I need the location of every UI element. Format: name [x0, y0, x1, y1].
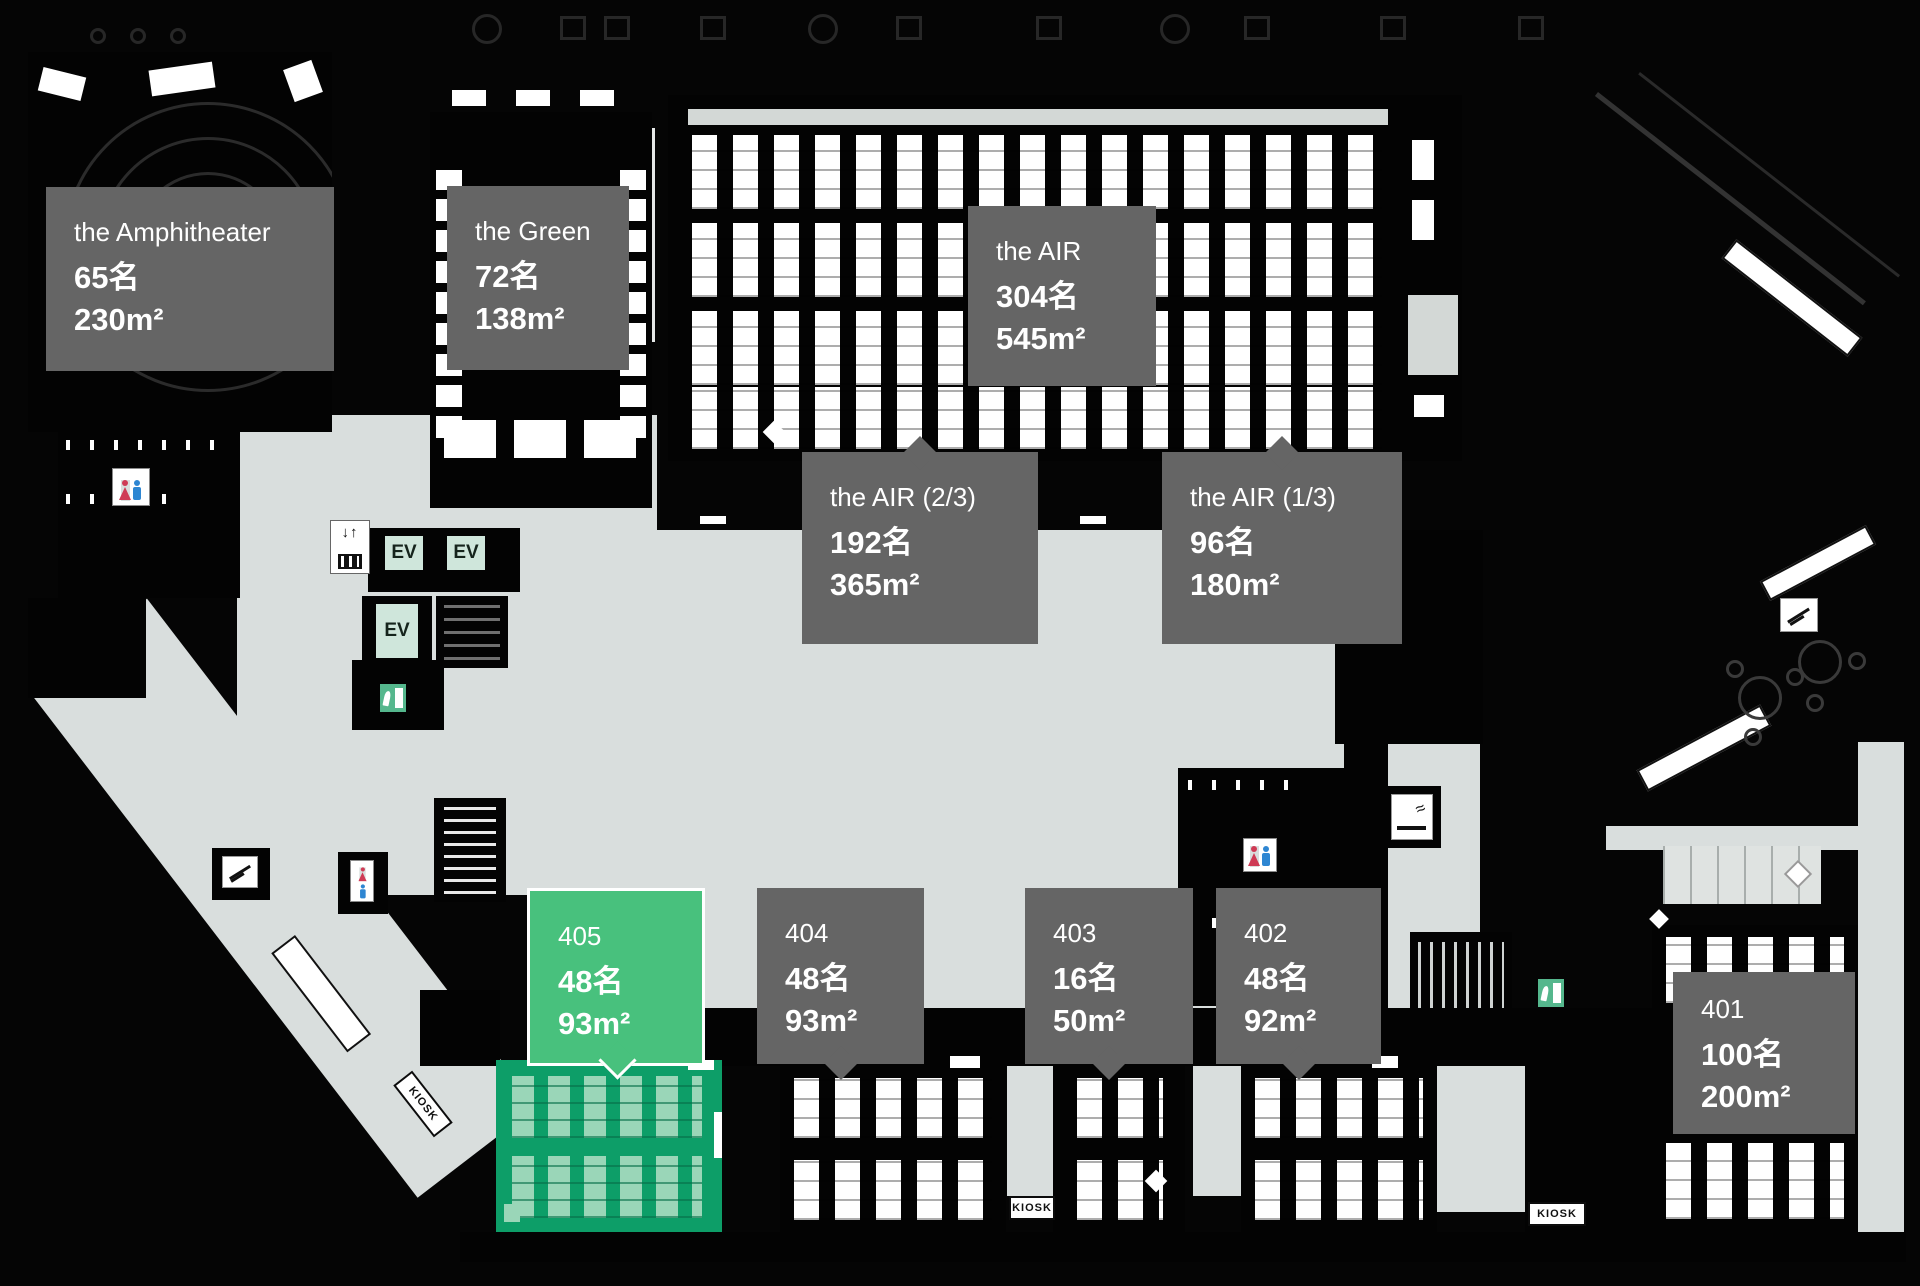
- cafe-chair: [1848, 652, 1866, 670]
- room-label-405-selected[interactable]: 405 48名 93m²: [527, 888, 705, 1066]
- female-icon: [359, 867, 365, 878]
- cafe-chair: [1806, 694, 1824, 712]
- stage-desk: [149, 62, 216, 97]
- restroom-block: [58, 430, 240, 598]
- female-icon: [1250, 846, 1259, 867]
- stage-counter: [688, 109, 1388, 125]
- room-area: 138m²: [475, 298, 629, 340]
- seat-band: [1255, 1078, 1423, 1138]
- door-gap: [1080, 516, 1106, 524]
- room-capacity: 48名: [1244, 958, 1381, 1000]
- stair-treads: [444, 806, 496, 894]
- elevator-car: [338, 554, 362, 569]
- elevator-arrows: ↓↑: [331, 525, 369, 540]
- table-group: [580, 90, 614, 106]
- terrace-table: [1036, 16, 1062, 40]
- table-group: [452, 90, 486, 106]
- exit-icon: [504, 1204, 520, 1222]
- room-area: 365m²: [830, 564, 1038, 606]
- ev-label: EV: [453, 542, 478, 564]
- seat-band: [794, 1160, 992, 1220]
- av-rack: [1412, 140, 1434, 180]
- room-name: the Green: [475, 216, 629, 247]
- terrace-table: [560, 16, 586, 40]
- restroom-icon: [1243, 838, 1277, 872]
- room-label-the-air-2-3[interactable]: the AIR (2/3) 192名 365m²: [802, 452, 1038, 644]
- terrace-table: [604, 16, 630, 40]
- male-icon: [133, 480, 142, 501]
- room-name: the Amphitheater: [74, 217, 334, 248]
- restroom-icon: [350, 860, 374, 902]
- room-capacity: 304名: [996, 276, 1156, 318]
- av-rack: [1412, 200, 1434, 240]
- terrace-table: [1244, 16, 1270, 40]
- elevator-ev-box: EV: [385, 536, 423, 570]
- kiosk-sign: KIOSK: [1009, 1196, 1055, 1220]
- kiosk-label: KIOSK: [1012, 1202, 1052, 1214]
- cafe-chair: [1744, 728, 1762, 746]
- table-group: [514, 420, 566, 458]
- corridor-floor: [1193, 1066, 1241, 1196]
- room-403: [1053, 1062, 1185, 1238]
- room-capacity: 48名: [558, 961, 702, 1003]
- av-panel: [1408, 295, 1458, 375]
- seat-band: [794, 1078, 992, 1138]
- seat-band: [1255, 1160, 1423, 1220]
- room-capacity: 72名: [475, 256, 629, 298]
- terrace-rail: [1595, 92, 1866, 305]
- table-group: [444, 420, 496, 458]
- male-icon: [359, 884, 365, 895]
- service-room: [28, 598, 146, 698]
- elevator-ev-box: EV: [447, 536, 485, 570]
- door-gap: [714, 1112, 722, 1158]
- room-402: [1241, 1062, 1437, 1238]
- room-name: 401: [1701, 994, 1855, 1025]
- female-icon: [121, 480, 130, 501]
- room-area: 93m²: [785, 1000, 924, 1042]
- kiosk-label: KIOSK: [1537, 1208, 1577, 1220]
- room-capacity: 48名: [785, 958, 924, 1000]
- room-name: the AIR: [996, 236, 1156, 267]
- terrace-stool: [90, 28, 106, 44]
- terrace-round-table: [808, 14, 838, 44]
- cafe-chair: [1726, 660, 1744, 678]
- terrace-table: [896, 16, 922, 40]
- seat-band: [512, 1076, 702, 1138]
- room-area: 50m²: [1053, 1000, 1193, 1042]
- room-area: 93m²: [558, 1003, 702, 1045]
- room-name: the AIR (1/3): [1190, 482, 1402, 513]
- kiosk-sign: KIOSK: [1528, 1202, 1586, 1226]
- room-name: 402: [1244, 918, 1381, 949]
- room-label-404[interactable]: 404 48名 93m²: [757, 888, 924, 1064]
- room-capacity: 192名: [830, 522, 1038, 564]
- escalator-icon: [222, 856, 258, 888]
- room-capacity: 65名: [74, 257, 334, 299]
- room-404: [780, 1062, 1006, 1238]
- room-label-402[interactable]: 402 48名 92m²: [1216, 888, 1381, 1064]
- corridor-floor: [1858, 742, 1904, 1236]
- terrace-stool: [170, 28, 186, 44]
- wall: [420, 990, 500, 1066]
- escalator-run: [1722, 239, 1863, 356]
- stage-desk: [38, 67, 86, 101]
- room-label-the-air[interactable]: the AIR 304名 545m²: [968, 206, 1156, 386]
- seat-band: [1666, 1143, 1844, 1219]
- bench: [1760, 525, 1876, 601]
- seat-band: [692, 135, 1382, 209]
- room-area: 230m²: [74, 299, 334, 341]
- wall: [460, 1232, 1906, 1262]
- table-group: [516, 90, 550, 106]
- room-label-403[interactable]: 403 16名 50m²: [1025, 888, 1193, 1064]
- terrace-table: [1380, 16, 1406, 40]
- terrace-table: [1518, 16, 1544, 40]
- av-rack: [1414, 395, 1444, 417]
- ev-label: EV: [391, 542, 416, 564]
- corridor-floor: [1007, 1066, 1053, 1196]
- room-label-the-air-1-3[interactable]: the AIR (1/3) 96名 180m²: [1162, 452, 1402, 644]
- elevator-ev-box: EV: [376, 604, 418, 658]
- exit-icon: [380, 684, 406, 712]
- room-405-highlighted: [496, 1060, 722, 1238]
- room-capacity: 96名: [1190, 522, 1402, 564]
- room-area: 180m²: [1190, 564, 1402, 606]
- room-area: 92m²: [1244, 1000, 1381, 1042]
- av-annex: [1404, 95, 1462, 461]
- room-name: 404: [785, 918, 924, 949]
- room-name: the AIR (2/3): [830, 482, 1038, 513]
- corridor-floor: [1437, 1066, 1525, 1212]
- room-capacity: 100名: [1701, 1034, 1855, 1076]
- room-name: 405: [558, 921, 702, 952]
- toilet-stalls: [66, 440, 232, 450]
- room-name: 403: [1053, 918, 1193, 949]
- terrace-table: [700, 16, 726, 40]
- door-gap: [950, 1056, 980, 1068]
- stair-treads: [444, 604, 500, 660]
- terrace-rail: [1638, 72, 1900, 278]
- elevator-icon: ↓↑: [330, 520, 370, 574]
- room-area: 200m²: [1701, 1076, 1855, 1118]
- floor-plan: KIOSK KIOSK KIOSK EV EV EV EV ↓↑ the Amp…: [0, 0, 1920, 1286]
- room-label-amphitheater[interactable]: the Amphitheater 65名 230m²: [46, 187, 334, 371]
- room-area: 545m²: [996, 318, 1156, 360]
- restroom-icon: [112, 468, 150, 506]
- seat-band: [1077, 1160, 1163, 1220]
- cafe-table: [1798, 640, 1842, 684]
- cafe-table: [1738, 676, 1782, 720]
- smoking-area-icon: [1391, 794, 1433, 840]
- terrace-stool: [130, 28, 146, 44]
- room-capacity: 16名: [1053, 958, 1193, 1000]
- ev-label: EV: [384, 620, 409, 642]
- seat-band: [512, 1156, 702, 1218]
- stage-desk: [283, 60, 323, 102]
- exit-icon: [1538, 979, 1564, 1007]
- seat-band: [1077, 1078, 1163, 1138]
- door-gap: [700, 516, 726, 524]
- stair-core: [434, 798, 506, 902]
- male-icon: [1262, 846, 1271, 867]
- escalator-icon: [1780, 598, 1818, 632]
- table-group: [584, 420, 636, 458]
- room-label-the-green[interactable]: the Green 72名 138m²: [447, 186, 629, 370]
- stair-core: [436, 596, 508, 668]
- room-label-401[interactable]: 401 100名 200m²: [1673, 972, 1855, 1134]
- terrace-round-table: [1160, 14, 1190, 44]
- terrace-round-table: [472, 14, 502, 44]
- toilet-stalls: [1188, 780, 1308, 790]
